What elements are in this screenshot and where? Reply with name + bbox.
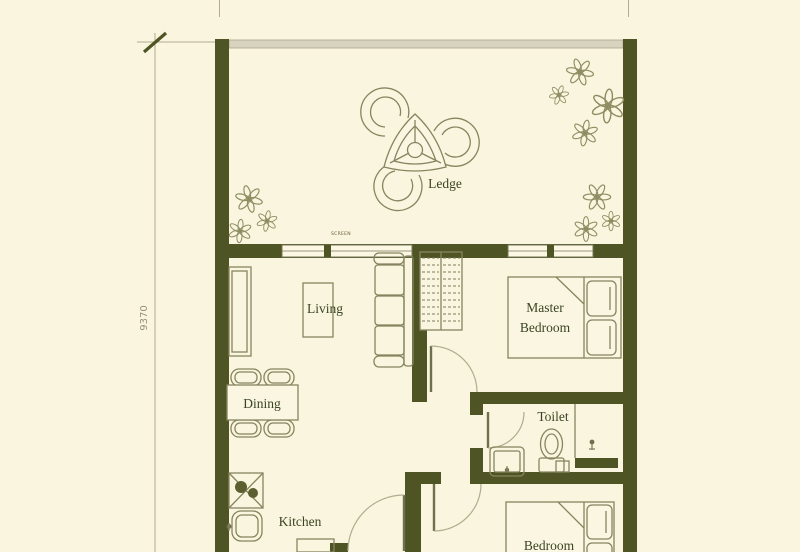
ledge-label: Ledge [428,176,462,191]
kitchen-label: Kitchen [279,514,322,529]
wall-shower-kerb [575,458,618,468]
wall-left-exterior [215,39,229,552]
plan-background [0,0,800,552]
wall-entrance-post [330,543,348,552]
window-living [282,245,412,257]
wall-corridor-right [412,330,427,402]
wall-right-exterior [623,39,637,552]
wall-toilet-left-upper [470,392,483,415]
wall-master-toilet [470,392,623,404]
window-master-bedroom [508,245,593,257]
dining-label: Dining [243,396,281,411]
master-bed [508,277,621,358]
wall-corridor-bottom [405,472,421,552]
master-bedroom-label-line2: Bedroom [520,320,571,335]
floor-plan-drawing: 9370 SCREEN [0,0,800,552]
bedroom-label: Bedroom [524,538,575,552]
toilet-label: Toilet [537,409,569,424]
floor-plan-canvas: 9370 SCREEN [0,0,800,552]
wall-bedroom-door-stub [421,472,441,484]
window-tag-label: SCREEN [331,231,351,237]
ledge-parapet [215,39,637,49]
living-label: Living [307,301,343,316]
dimension-label-vertical: 9370 [139,305,150,330]
master-bedroom-label-line1: Master [526,300,564,315]
wall-bedroom-top [479,472,623,484]
